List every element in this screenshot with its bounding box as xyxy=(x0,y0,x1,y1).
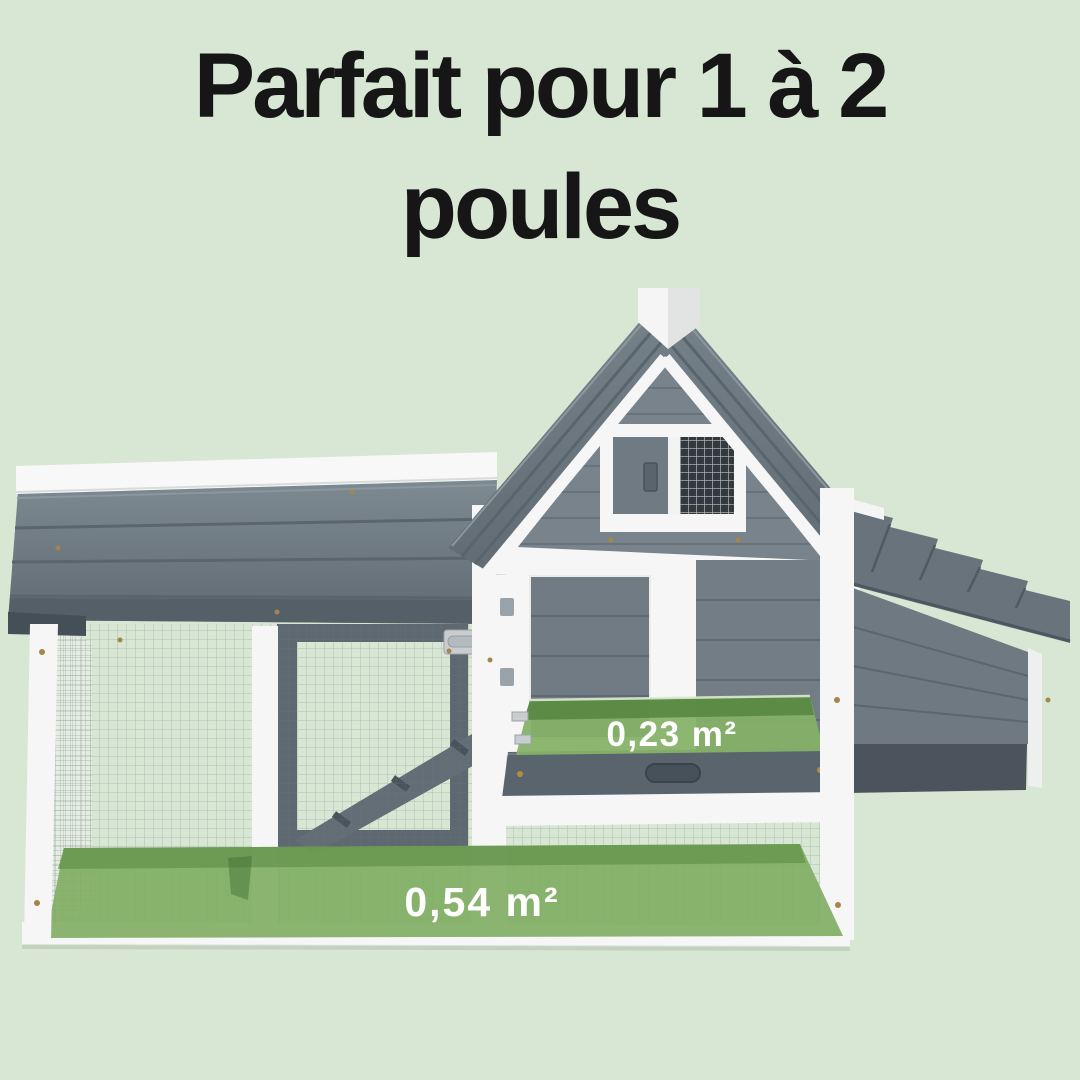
product-image: Parfait pour 1 à 2 poules xyxy=(0,0,1080,1080)
house-right-post xyxy=(820,488,854,940)
window-latch xyxy=(644,463,657,491)
droppings-tray xyxy=(502,748,836,798)
platform-hinge-bottom xyxy=(515,735,531,744)
house-area-label: 0,23 m² xyxy=(606,715,737,754)
run-area-label: 0,54 m² xyxy=(404,879,559,925)
coop-illustration: 0,23 m² xyxy=(0,0,1080,1080)
run-floor-highlight: 0,54 m² xyxy=(46,844,843,938)
tray-handle xyxy=(646,764,700,782)
nest-box-underside xyxy=(848,744,1027,793)
tray-base-board xyxy=(496,792,842,826)
house-floor-highlight: 0,23 m² xyxy=(512,696,824,755)
nest-box-edge-trim xyxy=(1028,648,1042,788)
floor-shadow-patch xyxy=(228,856,252,900)
window-slide-panel xyxy=(613,437,668,514)
nest-box-section xyxy=(840,496,1070,793)
door-hinge-top xyxy=(500,598,514,616)
gable-window xyxy=(600,424,746,532)
door-hinge-bottom xyxy=(500,668,514,686)
platform-hinge-top xyxy=(512,712,528,721)
ground-shadow xyxy=(22,947,850,949)
run-roof xyxy=(8,452,497,636)
